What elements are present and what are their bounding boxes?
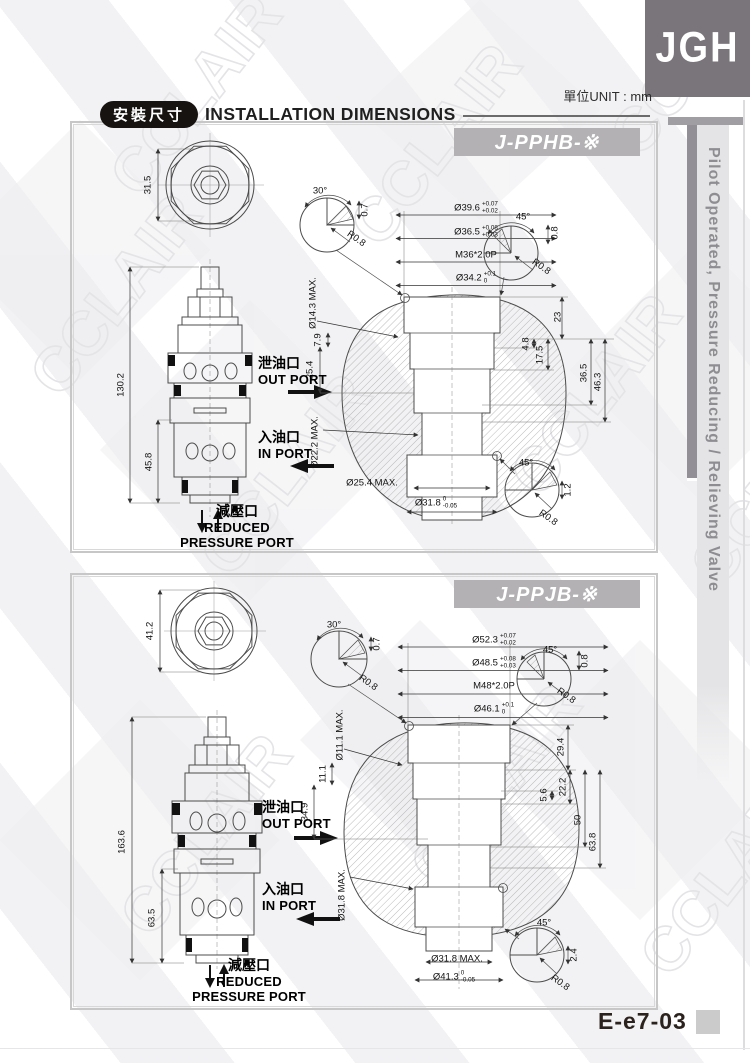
model-banner-jpphb: J-PPHB-※ <box>454 128 640 156</box>
section-header-zh: 安裝尺寸 <box>100 101 198 128</box>
dim-label: 5.6 <box>539 788 549 801</box>
dim-label: M36*2.0P <box>455 250 497 260</box>
dim-label: 23 <box>553 312 563 323</box>
out-port-en: OUT PORT <box>258 372 327 387</box>
in-port-zh: 入油口 <box>258 429 312 446</box>
reduced-port-label: 減壓口 REDUCED PRESSURE PORT <box>162 503 312 550</box>
dim-label: 41.2 <box>145 622 155 641</box>
dim-label: Ø11.1 MAX. <box>335 709 345 760</box>
section-header-en: INSTALLATION DIMENSIONS <box>205 104 456 125</box>
model-name: J-PPJB-※ <box>496 582 597 607</box>
dim-label: 2.4 <box>569 948 579 961</box>
dim-label: 30° <box>313 186 327 196</box>
dim-label: 45° <box>519 458 533 468</box>
brand-logo: JGH <box>645 0 750 97</box>
dim-label: R0.8 <box>549 973 571 992</box>
dim-label: Ø25.4 MAX. <box>346 478 398 488</box>
out-port-zh: 泄油口 <box>262 799 331 816</box>
dim-label: Ø14.3 MAX. <box>308 277 318 329</box>
dim-label: 0.7 <box>372 637 382 650</box>
dim-label: Ø31.8 MAX. <box>337 869 347 921</box>
in-port-en: IN PORT <box>258 446 312 461</box>
page-edge-line <box>743 100 745 1050</box>
in-port-label: 入油口 IN PORT <box>262 881 316 913</box>
dim-label: 1.2 <box>563 483 573 496</box>
dim-label: 7.9 <box>313 333 323 346</box>
dim-label: 30° <box>327 620 341 630</box>
panel-jpphb: J-PPHB-※ <box>70 121 658 553</box>
dim-label: 0.7 <box>360 203 370 216</box>
sidebar-top-bar <box>668 117 745 125</box>
dim-label: 50 <box>573 815 583 826</box>
dim-label: R0.8 <box>537 508 559 527</box>
reduced-port-zh: 減壓口 <box>162 503 312 520</box>
reduced-port-en2: PRESSURE PORT <box>162 535 312 550</box>
reduced-port-en1: REDUCED <box>162 520 312 535</box>
dim-label: 45.8 <box>144 453 154 472</box>
dim-label: Ø41.30-0.05 <box>433 970 475 983</box>
brand-logo-text: JGH <box>655 24 739 72</box>
dim-label: 45° <box>537 918 551 928</box>
dim-label: 163.6 <box>117 830 127 854</box>
dim-label: Ø48.5+0.08+0.03 <box>472 656 516 669</box>
dim-label: Ø36.5+0.08+0.03 <box>454 225 498 238</box>
dim-label: R0.8 <box>345 229 367 248</box>
dim-label: M48*2.0P <box>473 681 515 691</box>
dim-label: 63.8 <box>588 833 598 852</box>
dim-label: Ø34.2+0.10 <box>456 271 496 284</box>
dim-label: 4.8 <box>521 337 531 350</box>
reduced-port-label: 減壓口 REDUCED PRESSURE PORT <box>169 957 329 1004</box>
model-banner-jppjb: J-PPJB-※ <box>454 580 640 608</box>
dim-label: 11.1 <box>318 765 328 783</box>
dim-label: 45° <box>516 212 530 222</box>
dim-label-layer: 31.5130.245.830°0.7R0.8Ø39.6+0.07+0.02Ø3… <box>74 125 654 549</box>
dim-label: 31.5 <box>143 176 153 195</box>
dim-label: 29.4 <box>556 738 566 757</box>
reduced-port-zh: 減壓口 <box>169 957 329 974</box>
reduced-port-en1: REDUCED <box>169 974 329 989</box>
dim-label: 17.5 <box>535 346 545 365</box>
sidebar-category-strip: Pilot Operated, Pressure Reducing / Reli… <box>697 125 729 785</box>
in-port-label: 入油口 IN PORT <box>258 429 312 461</box>
sidebar-category-text: Pilot Operated, Pressure Reducing / Reli… <box>704 147 722 785</box>
header-rule <box>463 115 650 117</box>
sidebar-vertical-bar <box>687 125 697 481</box>
dim-label: 22.2 <box>558 778 568 797</box>
page-code: E-e7-03 <box>598 1008 720 1035</box>
dim-label: 36.5 <box>579 364 589 383</box>
dim-label: 0.8 <box>550 226 560 239</box>
model-name: J-PPHB-※ <box>495 130 600 155</box>
in-port-zh: 入油口 <box>262 881 316 898</box>
reduced-port-en2: PRESSURE PORT <box>169 989 329 1004</box>
dim-label: R0.8 <box>555 686 577 705</box>
panel-jppjb: J-PPJB-※ <box>70 573 658 1010</box>
section-header: 安裝尺寸 INSTALLATION DIMENSIONS <box>100 101 650 128</box>
dim-label: R0.8 <box>530 257 552 276</box>
page-code-marker <box>696 1010 720 1034</box>
in-port-en: IN PORT <box>262 898 316 913</box>
dim-label: 130.2 <box>116 373 126 397</box>
dim-label: Ø39.6+0.07+0.02 <box>454 201 498 214</box>
dim-label-layer: 41.2163.663.530°0.7R0.8Ø52.3+0.07+0.02Ø4… <box>74 577 654 1006</box>
out-port-label: 泄油口 OUT PORT <box>258 355 327 387</box>
page-bottom-line <box>0 1048 750 1049</box>
dim-label: Ø31.8 MAX. <box>431 954 483 964</box>
out-port-zh: 泄油口 <box>258 355 327 372</box>
dim-label: 46.3 <box>593 373 603 392</box>
dim-label: 45° <box>543 645 557 655</box>
page-code-text: E-e7-03 <box>598 1008 687 1035</box>
dim-label: R0.8 <box>357 673 379 692</box>
dim-label: 63.5 <box>147 909 157 928</box>
dim-label: Ø31.80-0.05 <box>415 496 457 509</box>
dim-label: Ø46.1+0.10 <box>474 702 514 715</box>
out-port-label: 泄油口 OUT PORT <box>262 799 331 831</box>
out-port-en: OUT PORT <box>262 816 331 831</box>
dim-label: Ø52.3+0.07+0.02 <box>472 633 516 646</box>
dim-label: 0.8 <box>580 654 590 667</box>
